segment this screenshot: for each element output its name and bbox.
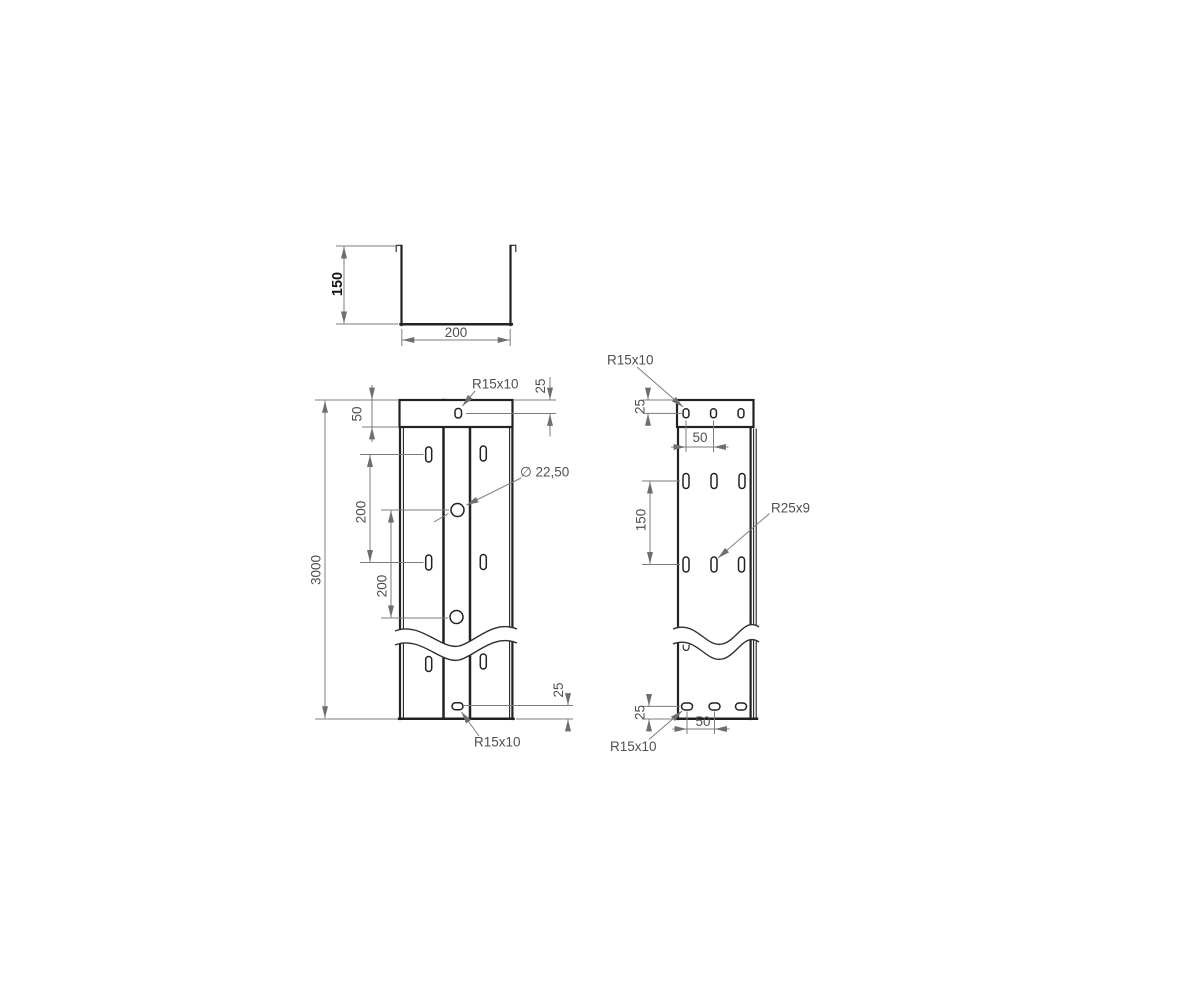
callout-label-r15x10-top: R15x10 bbox=[472, 377, 519, 392]
dim-row-pitch-150: 150 bbox=[634, 481, 681, 565]
dim-endzone-50: 50 bbox=[350, 385, 399, 442]
dim-pitch-200-upper: 200 bbox=[354, 455, 424, 563]
end-slot bbox=[455, 409, 462, 419]
callout-label-r15x10-bottom: R15x10 bbox=[610, 739, 657, 754]
round-hole-lower bbox=[450, 611, 463, 624]
dim-height-150: 150 bbox=[330, 246, 398, 324]
side-slot-pattern bbox=[682, 409, 747, 710]
technical-drawing: 150 200 bbox=[0, 0, 1200, 1000]
side-view: 25 50 150 25 50 bbox=[607, 353, 810, 755]
round-hole-upper bbox=[451, 504, 464, 517]
front-break-lines bbox=[395, 627, 517, 661]
dim-label-50-bottom: 50 bbox=[695, 714, 710, 729]
dim-offset-25-bottom: 25 bbox=[633, 695, 681, 732]
dim-label-200-upper: 200 bbox=[354, 501, 369, 524]
dim-label-25-bottom: 25 bbox=[551, 682, 566, 697]
front-view-outline bbox=[399, 400, 514, 719]
side-break-lines bbox=[673, 625, 759, 660]
dim-label-height-150: 150 bbox=[330, 272, 346, 296]
dim-overall-3000: 3000 bbox=[309, 400, 399, 719]
dim-label-25-top: 25 bbox=[533, 378, 548, 393]
dim-label-50: 50 bbox=[350, 406, 365, 421]
bottom-end-slot bbox=[452, 703, 463, 710]
front-view: 3000 50 200 200 25 bbox=[309, 377, 574, 750]
dim-offset-25-bottom: 25 bbox=[464, 682, 573, 731]
drawing-canvas: 150 200 bbox=[0, 0, 1200, 1000]
dim-label-25-bottom: 25 bbox=[633, 705, 648, 720]
dim-pitch-200-lower: 200 bbox=[375, 510, 450, 618]
cross-section-outline bbox=[396, 245, 516, 325]
callout-slot-top: R15x10 bbox=[607, 353, 683, 408]
dim-width-200: 200 bbox=[402, 325, 510, 346]
callout-label-r15x10-top: R15x10 bbox=[607, 353, 654, 368]
dim-label-200-lower: 200 bbox=[375, 575, 390, 598]
callout-label-diameter: ∅ 22,50 bbox=[520, 465, 569, 480]
dim-offset-25-top: 25 bbox=[633, 389, 683, 426]
callout-label-r25x9: R25x9 bbox=[771, 501, 810, 516]
callout-label-r15x10-bottom: R15x10 bbox=[474, 735, 521, 750]
dim-label-150: 150 bbox=[634, 509, 649, 532]
broken-slot-remnant bbox=[683, 645, 689, 650]
front-slot-pattern bbox=[426, 409, 487, 710]
dim-label-3000: 3000 bbox=[309, 555, 324, 585]
dim-label-width-200: 200 bbox=[445, 325, 468, 340]
cross-section-view: 150 200 bbox=[330, 245, 516, 346]
dim-label-50-top: 50 bbox=[692, 430, 707, 445]
dim-pitch-50-bottom: 50 bbox=[673, 712, 730, 735]
callout-slot-middle: R25x9 bbox=[718, 501, 810, 559]
dim-label-25-top: 25 bbox=[633, 399, 648, 414]
